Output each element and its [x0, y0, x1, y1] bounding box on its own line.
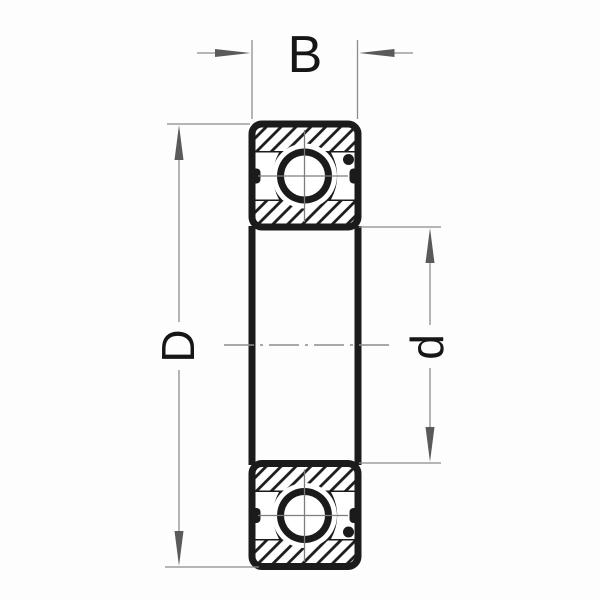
bottom-snap-ring-dot: [343, 527, 354, 538]
d-outer-label: D: [152, 329, 204, 362]
top-snap-ring-dot: [343, 154, 354, 165]
dimension-B: B: [197, 26, 413, 119]
bearing-drawing: B D d: [0, 0, 600, 600]
b-arrow-left: [215, 49, 251, 57]
d-outer-arrow-down: [175, 531, 184, 566]
bearing-section-bottom: [249, 462, 361, 569]
b-arrow-right: [359, 49, 395, 57]
bearing-section-top: [249, 122, 361, 229]
d-bore-label: d: [401, 334, 453, 360]
d-bore-arrow-down: [426, 427, 435, 462]
d-bore-arrow-up: [426, 228, 435, 263]
b-label: B: [288, 26, 323, 84]
d-outer-arrow-up: [175, 125, 184, 160]
bearing-drawing-svg: B D d: [0, 0, 600, 600]
